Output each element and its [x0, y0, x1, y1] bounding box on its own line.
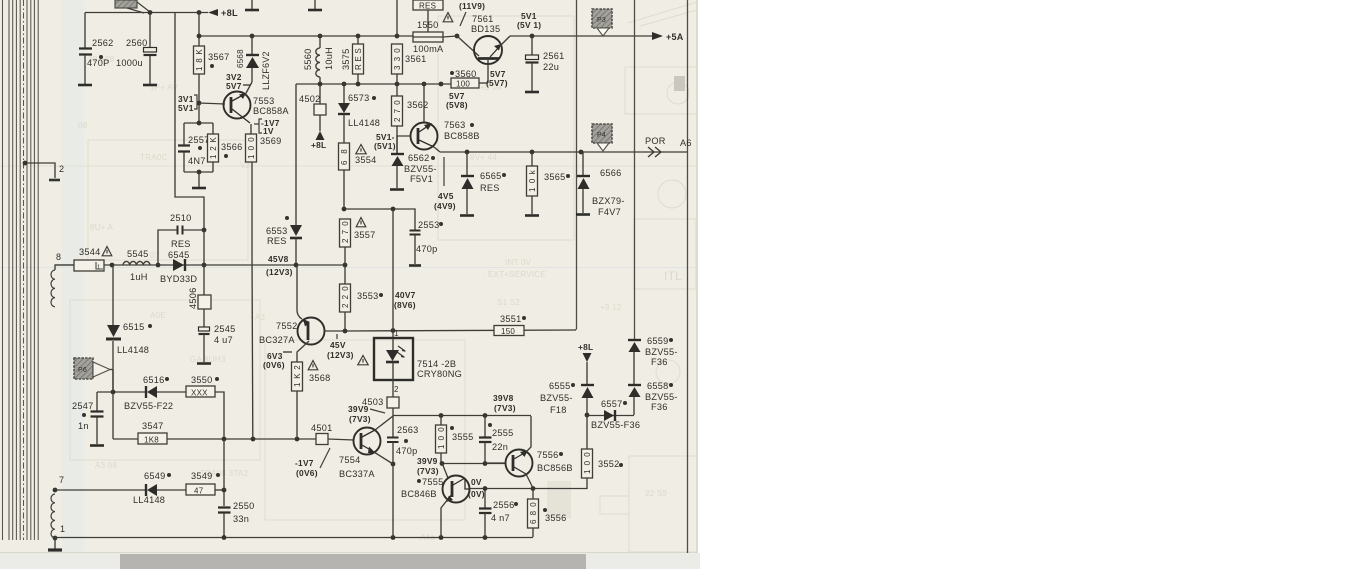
svg-text:3557: 3557: [354, 230, 375, 240]
svg-text:3551: 3551: [500, 314, 521, 324]
svg-text:TRA0C: TRA0C: [140, 153, 167, 162]
svg-text:F4V7: F4V7: [598, 207, 621, 217]
svg-text:3556: 3556: [545, 513, 566, 523]
svg-text:7555: 7555: [422, 477, 443, 487]
svg-text:INT 0V: INT 0V: [505, 258, 532, 267]
svg-text:1K2: 1K2: [293, 365, 302, 387]
svg-text:6555: 6555: [549, 381, 570, 391]
svg-text:18K: 18K: [195, 49, 204, 71]
svg-text:6557: 6557: [601, 399, 622, 409]
svg-text:6559: 6559: [647, 336, 668, 346]
svg-text:S1 S2: S1 S2: [497, 298, 520, 307]
svg-text:0V: 0V: [471, 477, 482, 487]
svg-text:12K: 12K: [209, 137, 218, 159]
svg-text:3553: 3553: [357, 291, 378, 301]
svg-text:LLZF6V2: LLZF6V2: [261, 51, 271, 90]
svg-text:-1V7: -1V7: [295, 458, 314, 468]
svg-text:6516: 6516: [143, 375, 164, 385]
svg-text:(7V3): (7V3): [417, 466, 439, 476]
svg-text:7561: 7561: [472, 14, 493, 24]
svg-text:3566: 3566: [221, 142, 242, 152]
svg-text:BZV55-: BZV55-: [645, 347, 678, 357]
svg-text:F5V1: F5V1: [410, 174, 433, 184]
svg-text:680: 680: [529, 502, 538, 524]
svg-text:22 S9: 22 S9: [645, 489, 667, 498]
svg-text:2: 2: [59, 164, 64, 174]
svg-text:RES: RES: [171, 239, 191, 249]
svg-text:6549: 6549: [144, 471, 165, 481]
svg-text:XXX: XXX: [191, 389, 208, 398]
svg-text:100: 100: [247, 137, 256, 159]
svg-text:7554: 7554: [339, 455, 360, 465]
svg-text:A3 08: A3 08: [95, 461, 117, 470]
svg-text:2545: 2545: [214, 324, 235, 334]
svg-text:100: 100: [583, 452, 592, 474]
svg-text:BC858B: BC858B: [444, 131, 480, 141]
svg-text:+8L: +8L: [221, 8, 238, 18]
svg-text:2555: 2555: [492, 428, 513, 438]
svg-text:8V+ 44: 8V+ 44: [470, 153, 497, 162]
svg-text:45V8: 45V8: [268, 254, 289, 264]
svg-text:5545: 5545: [127, 249, 148, 259]
svg-text:22n: 22n: [492, 442, 508, 452]
svg-text:3561: 3561: [405, 54, 426, 64]
svg-text:2557: 2557: [188, 135, 209, 145]
svg-text:270: 270: [341, 221, 350, 243]
svg-text:3565: 3565: [544, 172, 565, 182]
svg-text:39V9: 39V9: [417, 456, 438, 466]
svg-text:2510: 2510: [170, 213, 191, 223]
svg-text:BD135: BD135: [471, 24, 500, 34]
svg-text:4506: 4506: [188, 288, 198, 309]
svg-text:BZX79-: BZX79-: [592, 196, 625, 206]
svg-text:47: 47: [194, 487, 204, 496]
svg-text:6545: 6545: [168, 250, 189, 260]
svg-text:2553: 2553: [418, 220, 439, 230]
svg-text:(5V7): (5V7): [486, 78, 508, 88]
svg-text:(0V6): (0V6): [296, 468, 318, 478]
svg-text:(0V6): (0V6): [263, 360, 285, 370]
svg-text:3550: 3550: [191, 375, 212, 385]
svg-text:8: 8: [56, 252, 61, 262]
svg-text:BZV55-: BZV55-: [540, 393, 573, 403]
svg-text:2: 2: [394, 385, 399, 394]
svg-text:(12V3): (12V3): [327, 350, 354, 360]
svg-text:39V8: 39V8: [493, 393, 514, 403]
svg-text:LL4148: LL4148: [348, 118, 380, 128]
svg-text:2560: 2560: [126, 38, 147, 48]
svg-text:3555: 3555: [452, 432, 473, 442]
svg-text:7553: 7553: [253, 96, 274, 106]
svg-text:6568: 6568: [236, 49, 245, 68]
svg-text:+3 12: +3 12: [600, 303, 622, 312]
svg-text:6566: 6566: [600, 168, 621, 178]
svg-text:(4V9): (4V9): [434, 201, 456, 211]
svg-text:1uH: 1uH: [130, 272, 148, 282]
svg-text:(5V8): (5V8): [446, 100, 468, 110]
svg-text:3544: 3544: [79, 247, 100, 257]
svg-text:POR: POR: [645, 136, 666, 146]
svg-text:4V5: 4V5: [438, 191, 454, 201]
svg-text:39V9: 39V9: [348, 404, 369, 414]
svg-text:1: 1: [394, 329, 399, 338]
svg-text:3567: 3567: [208, 52, 229, 62]
svg-text:4502: 4502: [299, 94, 320, 104]
svg-text:6562: 6562: [408, 153, 429, 163]
svg-text:45V: 45V: [330, 340, 346, 350]
svg-text:(0V): (0V): [468, 489, 485, 499]
svg-text:P3: P3: [597, 17, 606, 24]
svg-text:(12V3): (12V3): [266, 267, 293, 277]
svg-text:F36: F36: [651, 357, 668, 367]
svg-text:(7V3): (7V3): [494, 403, 516, 413]
svg-text:3569: 3569: [260, 136, 281, 146]
svg-text:ITL: ITL: [664, 269, 682, 283]
svg-text:2563: 2563: [397, 425, 418, 435]
svg-text:A6: A6: [680, 138, 692, 148]
svg-text:BC846B: BC846B: [401, 489, 437, 499]
svg-text:1: 1: [60, 524, 65, 534]
svg-text:F18: F18: [550, 405, 567, 415]
svg-text:470P: 470P: [87, 58, 109, 68]
svg-text:A0E: A0E: [150, 311, 166, 320]
svg-text:2550: 2550: [233, 501, 254, 511]
svg-text:3568: 3568: [309, 373, 330, 383]
svg-text:270: 270: [393, 100, 402, 122]
svg-text:1V: 1V: [263, 126, 274, 136]
svg-text:10uH: 10uH: [324, 47, 334, 70]
svg-text:6565: 6565: [480, 171, 501, 181]
svg-text:40V7: 40V7: [395, 290, 416, 300]
svg-text:7514 -2B: 7514 -2B: [417, 359, 456, 369]
svg-text:: EXT+SERVICE: : EXT+SERVICE: [483, 270, 546, 279]
svg-text:7: 7: [59, 475, 64, 485]
svg-text:470p: 470p: [416, 244, 437, 254]
svg-text:1n: 1n: [78, 421, 89, 431]
svg-text:(5V1): (5V1): [374, 141, 396, 151]
svg-text:4 u7: 4 u7: [214, 335, 233, 345]
svg-text:7556: 7556: [537, 450, 558, 460]
svg-text:BC858A: BC858A: [253, 106, 289, 116]
svg-text:BC856B: BC856B: [537, 463, 573, 473]
svg-text:(7V3): (7V3): [349, 414, 371, 424]
svg-text:6515: 6515: [123, 322, 144, 332]
svg-text:100: 100: [437, 427, 446, 449]
svg-text:4 n7: 4 n7: [491, 513, 510, 523]
svg-text:BZV55-F36: BZV55-F36: [591, 420, 640, 430]
svg-text:BYD33D: BYD33D: [160, 274, 197, 284]
svg-text:7552: 7552: [276, 321, 297, 331]
svg-text:RES: RES: [267, 236, 287, 246]
svg-text:6558: 6558: [647, 381, 668, 391]
svg-text:8U+ A: 8U+ A: [90, 223, 114, 232]
svg-text:2547: 2547: [72, 401, 93, 411]
svg-text:100: 100: [456, 80, 470, 89]
svg-text:LL4148: LL4148: [133, 495, 165, 505]
svg-text:P4: P4: [597, 132, 606, 139]
svg-text:F36: F36: [651, 402, 668, 412]
svg-text:CRY80NG: CRY80NG: [417, 369, 462, 379]
svg-text:08: 08: [78, 121, 88, 130]
svg-text:7563: 7563: [444, 120, 465, 130]
svg-text:10k: 10k: [528, 169, 537, 192]
svg-text:22u: 22u: [543, 62, 559, 72]
svg-text:3575: 3575: [341, 49, 351, 70]
svg-text:RES: RES: [480, 183, 500, 193]
svg-text:4N7: 4N7: [188, 156, 206, 166]
svg-text:BC327A: BC327A: [259, 335, 295, 345]
svg-text:+8L: +8L: [578, 342, 593, 352]
svg-text:1K8: 1K8: [144, 436, 159, 445]
svg-text:2561: 2561: [543, 51, 564, 61]
svg-text:3554: 3554: [355, 155, 376, 165]
svg-text:2562: 2562: [92, 38, 113, 48]
svg-text:BZV55-: BZV55-: [404, 164, 437, 174]
svg-text:100mA: 100mA: [413, 44, 444, 54]
svg-text:1550: 1550: [417, 20, 438, 30]
svg-text:BZV55-F22: BZV55-F22: [124, 401, 173, 411]
svg-text:5560: 5560: [303, 49, 313, 70]
svg-text:BZV55-: BZV55-: [645, 392, 678, 402]
svg-text:220: 220: [341, 286, 350, 308]
svg-text:4501: 4501: [311, 423, 332, 433]
svg-text:RES: RES: [419, 2, 436, 11]
svg-text:5V1: 5V1: [178, 103, 194, 113]
svg-text:BC337A: BC337A: [339, 469, 375, 479]
svg-text:3549: 3549: [191, 471, 212, 481]
svg-text:(8V6): (8V6): [394, 300, 416, 310]
svg-text:5V7: 5V7: [226, 81, 242, 91]
svg-text:(5V 1): (5V 1): [517, 20, 541, 30]
svg-text:330: 330: [393, 48, 402, 70]
svg-text:P6: P6: [78, 367, 87, 374]
svg-text:33n: 33n: [233, 514, 249, 524]
svg-text:3552: 3552: [598, 459, 619, 469]
svg-text:6573: 6573: [348, 93, 369, 103]
svg-text:150: 150: [501, 327, 515, 336]
svg-text:2556: 2556: [493, 500, 514, 510]
svg-text:6553: 6553: [266, 226, 287, 236]
svg-text:3547: 3547: [142, 421, 163, 431]
svg-text:RES: RES: [354, 48, 363, 70]
svg-text:1000u: 1000u: [116, 58, 143, 68]
svg-text:(11V9): (11V9): [459, 1, 485, 11]
svg-text:+8L: +8L: [311, 140, 326, 150]
svg-text:+5A: +5A: [666, 32, 684, 42]
svg-text:LL4148: LL4148: [117, 345, 149, 355]
svg-text:1: 1: [97, 265, 101, 271]
svg-text:470p: 470p: [396, 446, 417, 456]
svg-text:3562: 3562: [407, 100, 428, 110]
